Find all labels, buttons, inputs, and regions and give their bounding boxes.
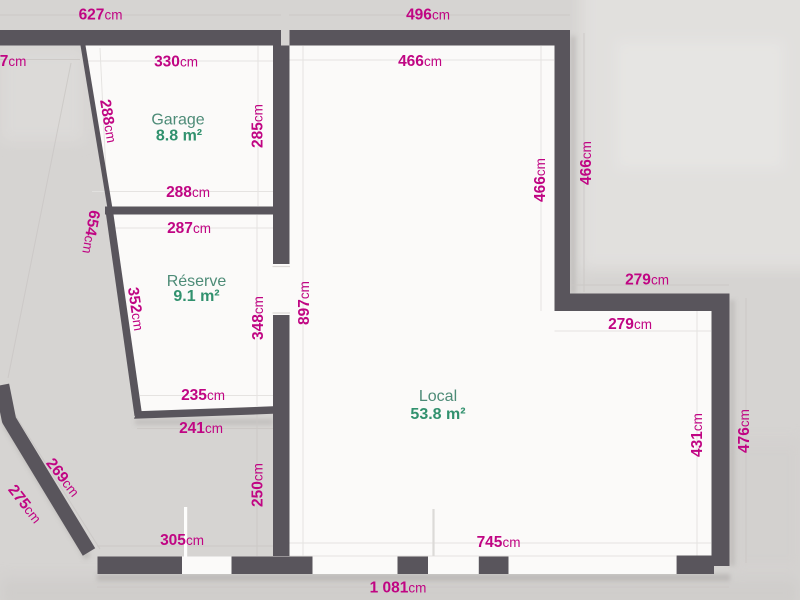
svg-text:288cm: 288cm [166, 184, 210, 201]
svg-text:285cm: 285cm [250, 104, 267, 148]
svg-text:Local: Local [419, 388, 457, 405]
svg-text:7cm: 7cm [0, 53, 26, 70]
svg-text:250cm: 250cm [250, 463, 267, 507]
svg-text:627cm: 627cm [79, 7, 123, 24]
svg-text:279cm: 279cm [608, 316, 652, 333]
svg-text:Garage: Garage [151, 112, 204, 129]
svg-text:466cm: 466cm [398, 53, 442, 70]
svg-text:496cm: 496cm [406, 7, 450, 24]
svg-text:897cm: 897cm [296, 281, 313, 325]
svg-text:241cm: 241cm [179, 420, 223, 437]
svg-text:9.1 m²: 9.1 m² [173, 288, 219, 305]
svg-text:466cm: 466cm [532, 158, 549, 202]
svg-text:305cm: 305cm [160, 532, 204, 549]
svg-text:431cm: 431cm [689, 413, 706, 457]
svg-text:1 081cm: 1 081cm [370, 580, 427, 597]
svg-text:8.8 m²: 8.8 m² [156, 128, 202, 145]
svg-text:53.8 m²: 53.8 m² [410, 406, 465, 423]
svg-text:279cm: 279cm [625, 272, 669, 289]
svg-text:476cm: 476cm [736, 409, 753, 453]
svg-text:745cm: 745cm [477, 534, 521, 551]
svg-text:348cm: 348cm [250, 296, 267, 340]
svg-text:287cm: 287cm [167, 220, 211, 237]
svg-text:330cm: 330cm [154, 54, 198, 71]
svg-text:466cm: 466cm [578, 141, 595, 185]
svg-text:235cm: 235cm [181, 387, 225, 404]
